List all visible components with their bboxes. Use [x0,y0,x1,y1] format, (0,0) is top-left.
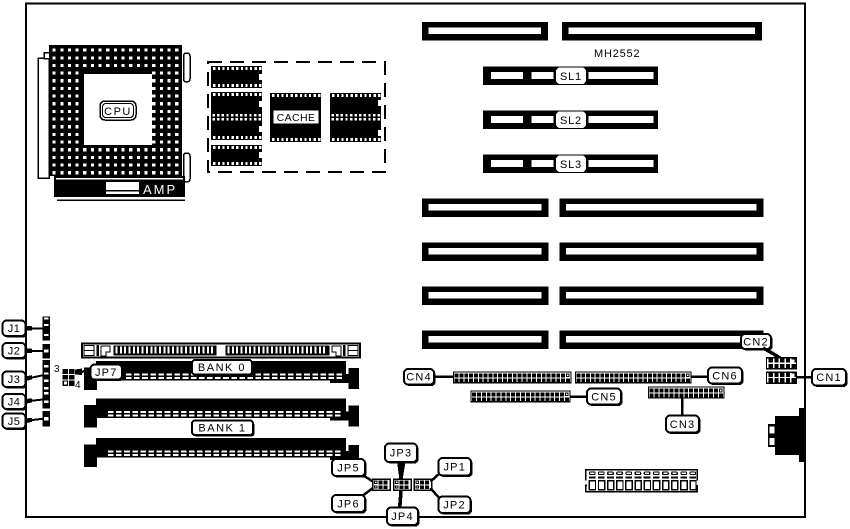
svg-text:BANK 0: BANK 0 [198,362,246,374]
svg-text:JP7: JP7 [95,367,118,379]
svg-text:JP1: JP1 [443,462,466,474]
svg-text:J4: J4 [8,396,21,408]
svg-text:CN3: CN3 [670,419,696,431]
svg-text:CN6: CN6 [712,370,738,382]
svg-text:J5: J5 [8,416,21,428]
svg-text:JP3: JP3 [390,448,413,460]
svg-text:CACHE: CACHE [277,112,316,124]
svg-text:JP5: JP5 [337,462,360,474]
svg-text:CPU: CPU [104,106,132,118]
svg-text:J2: J2 [8,345,21,357]
svg-text:J3: J3 [8,374,21,386]
svg-text:SL2: SL2 [560,115,582,127]
svg-text:CN4: CN4 [406,372,432,384]
svg-text:JP4: JP4 [391,511,414,523]
svg-text:JP6: JP6 [337,498,360,510]
svg-text:4: 4 [75,380,81,391]
svg-text:CN1: CN1 [816,372,842,384]
svg-text:BANK 1: BANK 1 [198,423,246,435]
svg-text:SL1: SL1 [560,71,582,83]
svg-text:CN2: CN2 [743,336,769,348]
svg-text:SL3: SL3 [560,159,582,171]
svg-text:MH2552: MH2552 [594,48,640,60]
svg-text:J1: J1 [8,323,21,335]
svg-text:3: 3 [54,364,60,375]
svg-text:JP2: JP2 [443,500,466,512]
svg-text:CN5: CN5 [591,391,617,403]
svg-text:AMP: AMP [143,182,177,197]
